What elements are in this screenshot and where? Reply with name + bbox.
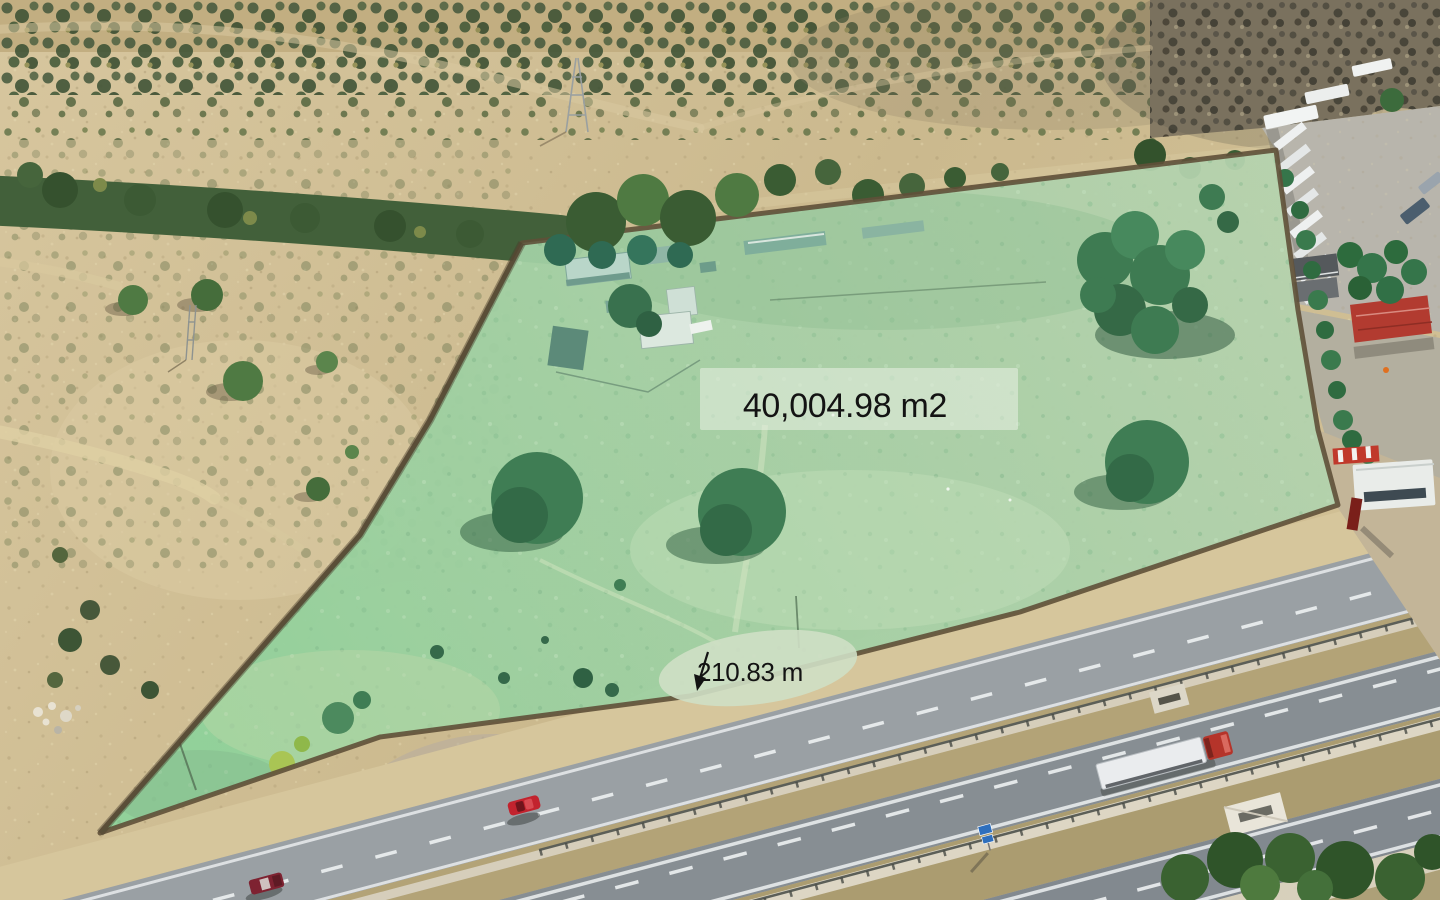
red-roof-building [1350, 295, 1434, 358]
frontage-label-text: 210.83 m [697, 657, 803, 687]
area-label: 40,004.98 m2 [700, 368, 1018, 430]
aerial-photo-canvas: 40,004.98 m2 210.83 m [0, 0, 1440, 900]
area-label-text: 40,004.98 m2 [743, 387, 947, 425]
traffic-cone [1383, 367, 1389, 373]
aerial-photo: 40,004.98 m2 210.83 m [0, 0, 1440, 900]
